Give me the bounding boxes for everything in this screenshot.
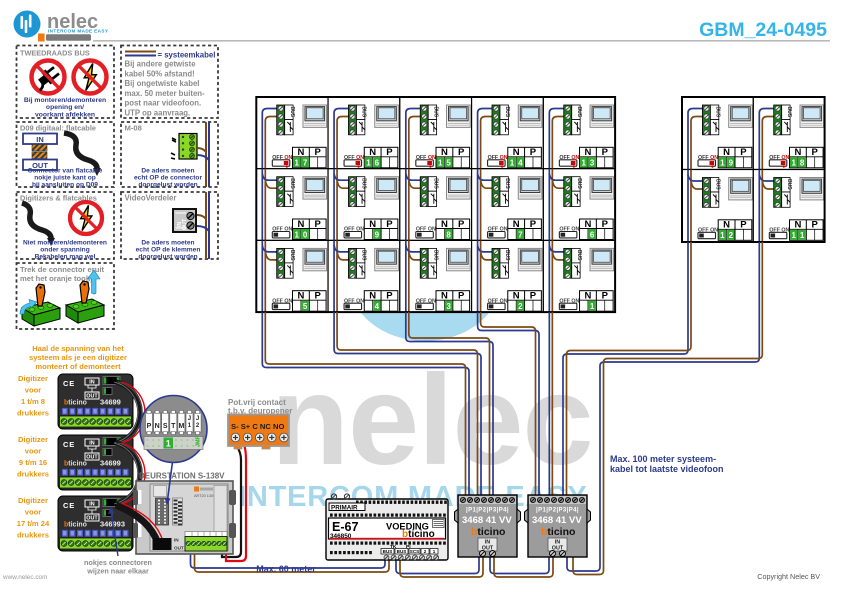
svg-text:nokje juiste kant op: nokje juiste kant op <box>34 175 96 182</box>
svg-text:OUT: OUT <box>86 516 98 522</box>
svg-text:M: M <box>178 423 184 430</box>
svg-text:S: S <box>163 423 168 430</box>
svg-text:voorkant afdekken: voorkant afdekken <box>35 111 95 118</box>
svg-text:N: N <box>723 147 730 158</box>
svg-text:bticino: bticino <box>64 461 87 468</box>
svg-text:6: 6 <box>375 159 380 168</box>
svg-text:BUS: BUS <box>289 250 295 261</box>
svg-text:J: J <box>196 416 199 422</box>
svg-text:P: P <box>458 219 465 230</box>
svg-text:N: N <box>441 147 448 158</box>
svg-text:|P1|P2|P3|P4|: |P1|P2|P3|P4| <box>536 508 579 514</box>
svg-text:BUS: BUS <box>786 107 792 118</box>
svg-text:bticino: bticino <box>64 400 87 407</box>
svg-text:N: N <box>585 291 592 302</box>
svg-text:kabel tot laatste videofoon: kabel tot laatste videofoon <box>610 464 724 474</box>
svg-text:IN: IN <box>89 502 94 508</box>
svg-text:VideoVerdeler: VideoVerdeler <box>125 194 177 203</box>
svg-text:IN: IN <box>89 441 94 447</box>
svg-text:BUS: BUS <box>504 107 510 118</box>
svg-text:N: N <box>441 219 448 230</box>
svg-text:P: P <box>740 220 747 231</box>
svg-text:9: 9 <box>375 230 380 239</box>
svg-text:P: P <box>315 291 322 302</box>
svg-text:BUS: BUS <box>289 107 295 118</box>
svg-text:onder spanning: onder spanning <box>40 247 89 254</box>
svg-text:De aders moeten: De aders moeten <box>141 168 194 175</box>
svg-text:1: 1 <box>433 549 436 554</box>
svg-text:N: N <box>369 147 376 158</box>
svg-text:DEURSTATION S-138V: DEURSTATION S-138V <box>139 472 225 481</box>
svg-text:BUS: BUS <box>361 107 367 118</box>
svg-text:De aders moeten: De aders moeten <box>141 240 194 247</box>
svg-text:5: 5 <box>446 159 451 168</box>
svg-text:P: P <box>147 423 152 430</box>
svg-text:3468 41 VV: 3468 41 VV <box>462 515 512 526</box>
svg-text:BUS: BUS <box>504 178 510 189</box>
svg-text:1: 1 <box>166 439 171 449</box>
svg-text:N: N <box>585 147 592 158</box>
svg-text:T: T <box>171 423 176 430</box>
svg-text:4: 4 <box>375 302 380 311</box>
svg-text:6: 6 <box>590 230 595 239</box>
svg-text:P: P <box>602 147 609 158</box>
svg-text:Digitizer: Digitizer <box>18 496 48 505</box>
svg-text:doorgelust worden: doorgelust worden <box>138 182 197 189</box>
svg-text:JMP: JMP <box>196 435 202 447</box>
svg-text:Bij monteren/demonteren: Bij monteren/demonteren <box>24 97 106 104</box>
svg-text:bticino: bticino <box>541 526 575 538</box>
svg-text:P: P <box>812 220 819 231</box>
svg-text:2: 2 <box>518 302 523 311</box>
svg-text:1: 1 <box>720 231 725 240</box>
svg-text:Max. 60 meter: Max. 60 meter <box>256 564 316 574</box>
svg-text:N: N <box>297 219 304 230</box>
svg-text:P: P <box>458 291 465 302</box>
svg-text:1: 1 <box>294 159 299 168</box>
svg-text:drukkers: drukkers <box>17 470 49 479</box>
svg-text:M-08: M-08 <box>125 124 142 133</box>
svg-text:BUS: BUS <box>383 549 393 554</box>
svg-text:N: N <box>723 220 730 231</box>
svg-text:ART20 1300: ART20 1300 <box>194 494 215 498</box>
svg-text:echt OP de klemmen: echt OP de klemmen <box>136 247 201 254</box>
svg-text:34699: 34699 <box>100 398 121 407</box>
svg-text:Max. 100 meter systeem-: Max. 100 meter systeem- <box>610 454 716 464</box>
svg-text:N: N <box>513 147 520 158</box>
svg-text:P: P <box>740 147 747 158</box>
svg-text:P: P <box>315 219 322 230</box>
svg-text:1 t/m 8: 1 t/m 8 <box>21 397 45 406</box>
svg-text:17 t/m 24: 17 t/m 24 <box>17 519 50 528</box>
svg-text:CE: CE <box>63 379 75 388</box>
svg-text:wijzen naar elkaar: wijzen naar elkaar <box>86 567 149 576</box>
svg-text:BUS: BUS <box>432 178 438 189</box>
svg-text:1: 1 <box>294 230 299 239</box>
svg-text:voor: voor <box>25 508 42 517</box>
svg-text:CE: CE <box>63 440 75 449</box>
svg-text:0: 0 <box>303 230 308 239</box>
svg-text:1: 1 <box>791 231 796 240</box>
svg-text:N: N <box>369 291 376 302</box>
svg-text:monteert of demonteert: monteert of demonteert <box>35 362 121 371</box>
svg-text:voor: voor <box>25 386 42 395</box>
svg-text:P: P <box>315 147 322 158</box>
svg-text:5: 5 <box>303 302 308 311</box>
svg-text:N: N <box>585 219 592 230</box>
svg-text:BUS: BUS <box>576 178 582 189</box>
svg-text:doorgelust worden: doorgelust worden <box>138 254 197 261</box>
svg-text:BUS: BUS <box>432 250 438 261</box>
svg-text:UTP op aanvraag.: UTP op aanvraag. <box>125 109 191 118</box>
svg-text:BUS: BUS <box>504 250 510 261</box>
svg-text:voor: voor <box>25 447 42 456</box>
svg-text:1: 1 <box>510 159 515 168</box>
svg-text:PRIMAIR: PRIMAIR <box>331 504 358 511</box>
svg-text:N: N <box>297 147 304 158</box>
svg-text:P: P <box>602 219 609 230</box>
svg-text:BUS: BUS <box>576 250 582 261</box>
svg-text:N: N <box>794 147 801 158</box>
svg-text:GBM_24-0495: GBM_24-0495 <box>699 19 827 41</box>
svg-text:P: P <box>386 291 393 302</box>
svg-text:www.nelec.com: www.nelec.com <box>2 574 47 581</box>
svg-text:E-67: E-67 <box>332 520 358 534</box>
svg-text:Connector van flatcable: Connector van flatcable <box>28 168 103 175</box>
svg-text:max. 50 meter buiten-: max. 50 meter buiten- <box>125 89 206 98</box>
svg-text:BUS: BUS <box>289 178 295 189</box>
svg-text:J: J <box>188 416 191 422</box>
svg-text:2: 2 <box>424 549 427 554</box>
svg-text:3: 3 <box>590 159 595 168</box>
svg-text:P: P <box>386 147 393 158</box>
svg-text:1: 1 <box>438 159 443 168</box>
svg-text:34699: 34699 <box>100 459 121 468</box>
svg-text:1: 1 <box>590 302 595 311</box>
svg-text:1: 1 <box>582 159 587 168</box>
svg-text:OUT: OUT <box>174 546 184 551</box>
svg-text:bticino: bticino <box>64 522 87 529</box>
svg-text:Digitizer: Digitizer <box>18 374 48 383</box>
svg-text:1: 1 <box>366 159 371 168</box>
svg-text:drukkers: drukkers <box>17 531 49 540</box>
svg-text:P: P <box>530 219 537 230</box>
svg-text:BUS: BUS <box>715 179 721 190</box>
svg-text:Haal de spanning van het: Haal de spanning van het <box>32 344 124 353</box>
svg-text:1: 1 <box>791 159 796 168</box>
svg-text:INTERCOM MADE EASY: INTERCOM MADE EASY <box>48 29 108 34</box>
svg-text:P: P <box>530 147 537 158</box>
svg-text:|P1|P2|P3|P4|: |P1|P2|P3|P4| <box>466 508 509 514</box>
svg-text:P: P <box>530 291 537 302</box>
svg-text:OUT: OUT <box>86 394 98 400</box>
svg-text:= systeemkabel: = systeemkabel <box>158 51 216 60</box>
svg-text:bticino: bticino <box>471 526 505 538</box>
svg-text:S- S+ C NC NO: S- S+ C NC NO <box>231 422 284 431</box>
svg-text:systeem als je een digitizer: systeem als je een digitizer <box>29 353 127 362</box>
svg-text:TWEEDRAADS BUS: TWEEDRAADS BUS <box>20 49 90 58</box>
svg-text:7: 7 <box>518 230 523 239</box>
svg-text:Copyright Nelec BV: Copyright Nelec BV <box>757 572 820 581</box>
svg-text:N: N <box>297 291 304 302</box>
svg-text:IN: IN <box>89 380 94 386</box>
svg-text:Bij andere getwiste: Bij andere getwiste <box>125 60 197 69</box>
svg-text:8: 8 <box>446 230 451 239</box>
svg-text:N: N <box>513 219 520 230</box>
svg-text:1: 1 <box>720 159 725 168</box>
svg-text:bij aansluiten op D09: bij aansluiten op D09 <box>32 182 98 189</box>
svg-text:9: 9 <box>729 159 734 168</box>
svg-text:4: 4 <box>518 159 523 168</box>
svg-text:P: P <box>458 147 465 158</box>
svg-text:opening en/: opening en/ <box>46 104 84 111</box>
svg-text:BUS: BUS <box>397 549 407 554</box>
svg-text:Digitizer: Digitizer <box>18 435 48 444</box>
svg-text:3: 3 <box>446 302 451 311</box>
svg-text:Niet monteren/demonteren: Niet monteren/demonteren <box>23 240 107 247</box>
svg-text:BUS: BUS <box>432 107 438 118</box>
svg-text:8: 8 <box>800 159 805 168</box>
svg-text:BUS: BUS <box>715 107 721 118</box>
svg-text:2: 2 <box>729 231 734 240</box>
svg-text:nelec: nelec <box>271 349 592 492</box>
svg-text:N: N <box>513 291 520 302</box>
svg-text:BUS: BUS <box>361 250 367 261</box>
svg-text:BUS: BUS <box>786 179 792 190</box>
svg-text:Bekabelen mag wel: Bekabelen mag wel <box>35 254 96 261</box>
svg-text:N: N <box>369 219 376 230</box>
svg-text:P: P <box>386 219 393 230</box>
svg-text:7: 7 <box>303 159 308 168</box>
svg-text:SCS: SCS <box>410 549 419 554</box>
svg-text:BUS: BUS <box>576 107 582 118</box>
svg-text:P: P <box>812 147 819 158</box>
svg-text:N: N <box>441 291 448 302</box>
svg-text:Bij ongetwiste kabel: Bij ongetwiste kabel <box>125 79 200 88</box>
svg-text:9 t/m 16: 9 t/m 16 <box>19 458 47 467</box>
svg-text:IN: IN <box>36 135 44 144</box>
svg-text:BUS: BUS <box>361 178 367 189</box>
svg-text:N: N <box>794 220 801 231</box>
svg-text:kabel 50% afstand!: kabel 50% afstand! <box>125 69 195 78</box>
svg-text:IN: IN <box>174 538 179 543</box>
svg-text:drukkers: drukkers <box>17 409 49 418</box>
svg-text:D09 digitaal: flatcable: D09 digitaal: flatcable <box>20 124 96 133</box>
svg-text:P: P <box>602 291 609 302</box>
svg-text:1: 1 <box>800 231 805 240</box>
svg-text:OUT: OUT <box>86 455 98 461</box>
svg-text:3468 41 VV: 3468 41 VV <box>532 515 582 526</box>
svg-text:N: N <box>155 423 160 430</box>
svg-text:CE: CE <box>63 501 75 510</box>
svg-text:post naar videofoon.: post naar videofoon. <box>125 99 202 108</box>
svg-text:echt OP de connector: echt OP de connector <box>134 175 202 182</box>
